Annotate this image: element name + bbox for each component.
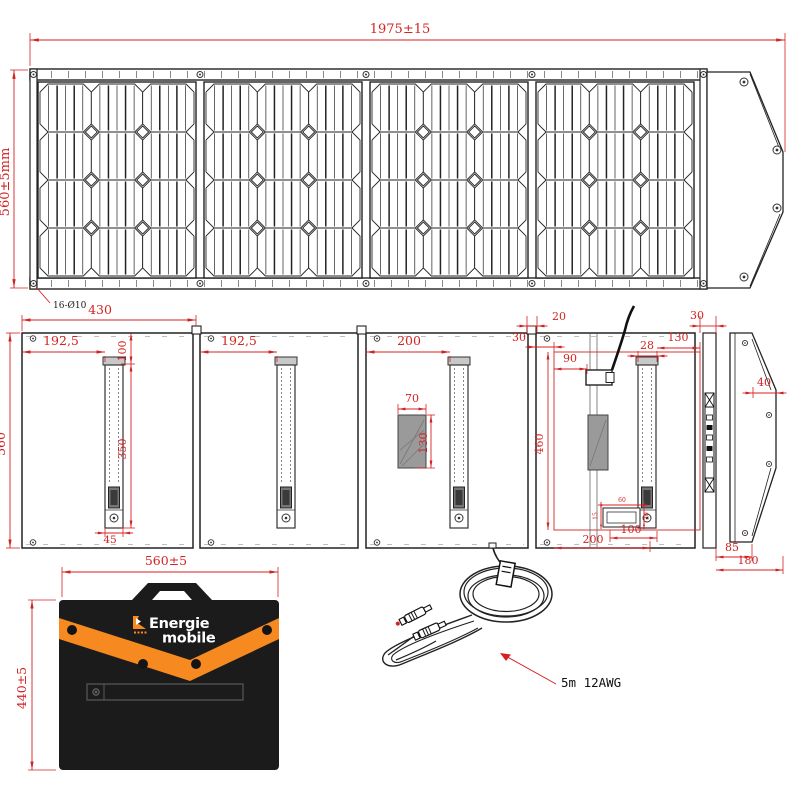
hinge-tab [527, 326, 536, 334]
strap-button [67, 625, 77, 635]
spine-label [705, 393, 714, 492]
strap-buckle-inner [456, 490, 463, 505]
rail-screw-dot [365, 74, 367, 76]
dim-label: 15 [593, 512, 600, 520]
dim-arrowhead [62, 570, 71, 573]
dim-arrowhead [537, 325, 544, 328]
leader-arrowhead [500, 653, 511, 661]
dim-label: 30 [690, 309, 704, 322]
dim-label: 200 [397, 333, 421, 348]
dim-arrowhead [776, 569, 783, 572]
rail-screw-dot [703, 283, 705, 285]
strap-cap [636, 357, 658, 365]
rail-screw-dot [365, 283, 367, 285]
spine-strip [703, 333, 716, 548]
dim-label: 560±5 [145, 553, 187, 568]
solar-panel-drawing: 16-Ø10 [0, 0, 800, 800]
strap-buckle-inner [111, 490, 118, 505]
dim-arrowhead [30, 600, 33, 609]
dim-arrowhead [8, 333, 11, 342]
dim-arrowhead [270, 570, 279, 573]
coil-strap [496, 561, 515, 587]
rail-screw-dot [33, 283, 35, 285]
dim-arrowhead [188, 318, 197, 321]
technical-drawing-page: 16-Ø10 [0, 0, 800, 800]
back-flap-rivet-dot [768, 463, 770, 465]
panel-screw-dot [376, 338, 378, 340]
rail-screw-dot [531, 283, 533, 285]
flap-rivet-dot [743, 81, 746, 84]
strap-button [262, 625, 272, 635]
front-right-flap [707, 72, 783, 288]
dim-label: 1975±15 [370, 22, 431, 37]
dim-label: 460 [533, 434, 546, 455]
cable-spec-label: 5m 12AWG [561, 675, 621, 690]
dim-label: 192,5 [43, 333, 79, 348]
dim-arrowhead [22, 318, 31, 321]
dim-label: 70 [405, 392, 419, 405]
panel-screw-dot [546, 338, 548, 340]
logo-text-line2: mobile [162, 631, 216, 647]
dim-arrowhead [8, 540, 11, 549]
rail-screw-dot [703, 74, 705, 76]
dim-label: 350 [116, 439, 129, 460]
flap-rivet-dot [776, 149, 779, 152]
back-right-flap [730, 333, 776, 542]
strap-button [138, 659, 148, 669]
dim-arrowhead [716, 556, 723, 559]
dim-arrowhead [693, 325, 700, 328]
panel-screw-dot [32, 542, 34, 544]
panel-screw-dot [210, 542, 212, 544]
dim-label: 100 [116, 341, 129, 362]
rail-screw-dot [531, 74, 533, 76]
rail-screw-dot [199, 74, 201, 76]
strap-screw-dot [458, 517, 461, 520]
left-side-bar [30, 69, 37, 289]
dim-label: 20 [552, 310, 566, 323]
back-flap-rivet-dot [768, 414, 770, 416]
holes-note: 16-Ø10 [53, 300, 87, 311]
dim-label: 560±5mm [0, 148, 13, 217]
dim-label: 40 [757, 376, 771, 389]
panel-screw-dot [546, 542, 548, 544]
dim-arrowhead [716, 325, 723, 328]
dim-label: 85 [725, 541, 739, 554]
dim-arrowhead [776, 38, 785, 41]
dim-label: 60 [618, 497, 626, 504]
strap-buckle-inner [644, 490, 651, 505]
bag-view-group: Energie mobile [59, 583, 279, 770]
bottom-pocket-inner [607, 512, 636, 523]
back-panel [366, 333, 528, 548]
panel-screw-dot [32, 338, 34, 340]
cable-label-leader [502, 654, 556, 684]
flap-rivet-dot [743, 276, 746, 279]
dim-arrowhead [776, 392, 783, 395]
strap-screw-dot [113, 517, 116, 520]
cable-exit [489, 543, 496, 548]
strap-button [191, 659, 201, 669]
dim-label: 192,5 [221, 333, 257, 348]
dim-label: 200 [583, 533, 604, 546]
mc4-connector-1 [394, 603, 432, 628]
cable-view-group: 5m 12AWG [383, 543, 622, 690]
dim-label: 560 [0, 432, 8, 456]
strap-screw-dot [285, 517, 288, 520]
dim-label: 30 [512, 331, 526, 344]
front-panel-array [38, 82, 694, 278]
dim-arrowhead [30, 38, 39, 41]
front-view-group: 16-Ø10 [30, 69, 783, 311]
panel-screw-dot [376, 542, 378, 544]
strap-cap [448, 357, 470, 365]
dim-label: 440±5 [14, 667, 29, 709]
rail-screw-dot [199, 283, 201, 285]
panel-screw-dot [210, 338, 212, 340]
dim-arrowhead [716, 569, 723, 572]
dim-arrowhead [12, 70, 15, 79]
cable-gland-nut [606, 373, 614, 383]
dim-arrowhead [520, 325, 527, 328]
mc4-connector-2 [413, 620, 447, 641]
dim-arrowhead [693, 347, 700, 350]
flap-rivet-dot [776, 207, 779, 210]
back-flap-rivet-dot [744, 532, 746, 534]
right-side-bar [700, 69, 707, 289]
dim-label: 28 [640, 339, 654, 352]
dim-label: 180 [738, 554, 759, 567]
dim-label: 100 [621, 523, 642, 536]
dim-arrowhead [12, 279, 15, 288]
dim-arrowhead [30, 762, 33, 771]
strap-buckle-inner [283, 490, 290, 505]
dim-label: 130 [668, 331, 689, 344]
dim-label: 20 [644, 512, 651, 520]
rail-screw-dot [33, 74, 35, 76]
back-flap-rivet-dot [744, 342, 746, 344]
dim-label: 90 [563, 352, 577, 365]
dim-label: 430 [88, 302, 112, 317]
hinge-tab [192, 326, 201, 334]
hinge-tab [357, 326, 366, 334]
dim-label: 130 [417, 433, 430, 454]
strap-cap [275, 357, 297, 365]
dim-arrowhead [529, 346, 536, 349]
